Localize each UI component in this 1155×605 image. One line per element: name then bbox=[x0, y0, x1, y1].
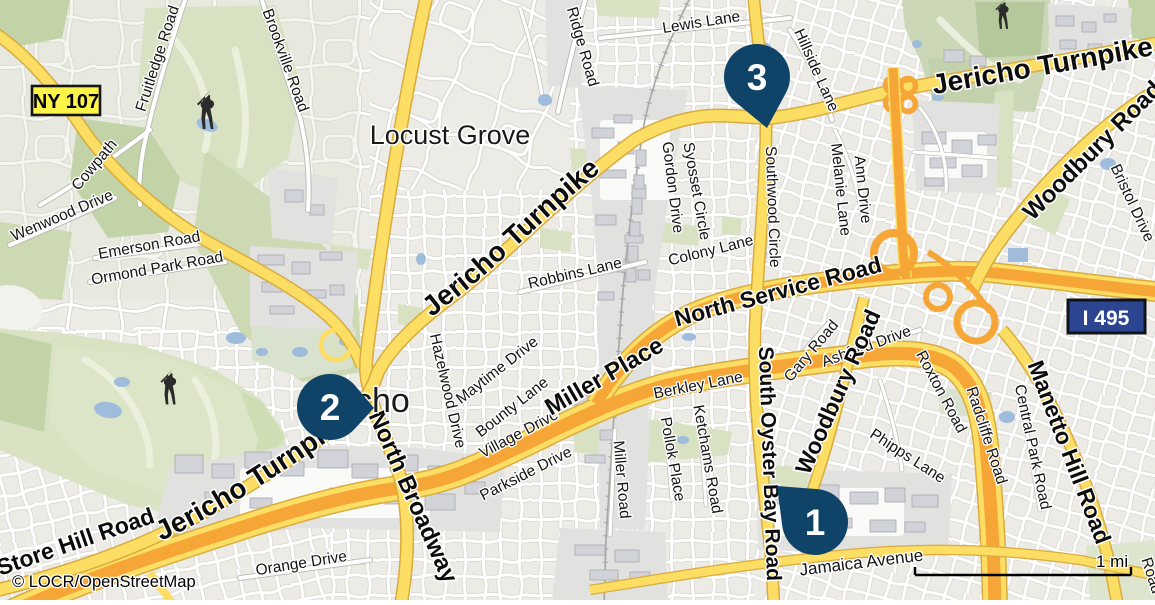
svg-text:© LOCR/OpenStreetMap: © LOCR/OpenStreetMap bbox=[12, 573, 196, 591]
svg-text:Locust Grove: Locust Grove bbox=[370, 120, 531, 150]
svg-text:1 mi: 1 mi bbox=[1096, 552, 1128, 571]
svg-text:3: 3 bbox=[747, 57, 768, 98]
svg-text:I 495: I 495 bbox=[1083, 307, 1130, 330]
svg-text:NY 107: NY 107 bbox=[33, 91, 99, 113]
svg-text:1: 1 bbox=[805, 502, 826, 543]
svg-text:2: 2 bbox=[320, 387, 341, 428]
